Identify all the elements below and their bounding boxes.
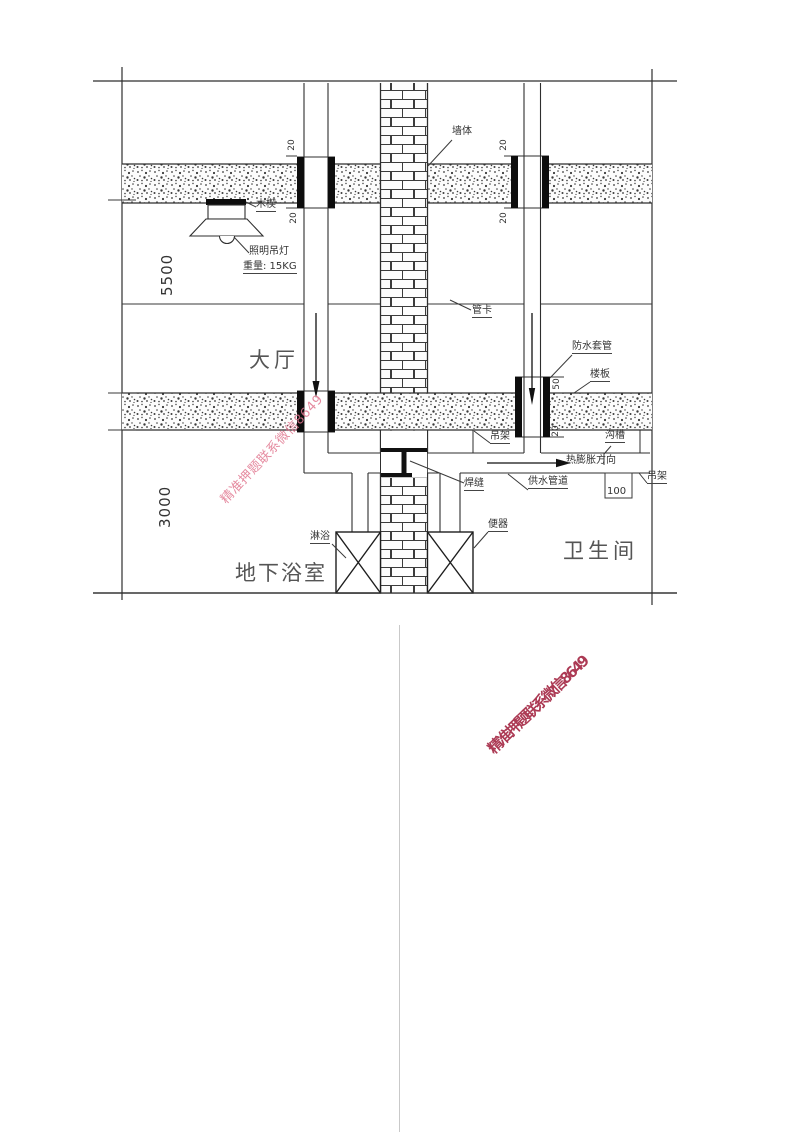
weld-seam-label: 焊缝 — [464, 478, 484, 491]
dim-left-sleeve-above: 20 — [287, 138, 297, 152]
brick-wall — [381, 83, 428, 593]
hanger-left-label: 吊架 — [490, 431, 510, 444]
thermal-direction-label: 热膨胀方向 — [566, 455, 616, 467]
page-fold-line — [399, 625, 400, 1132]
dim-hall-height: 5500 — [158, 254, 176, 296]
waterproof-sleeve-label: 防水套管 — [572, 341, 612, 354]
dim-groove-width: 100 — [607, 486, 626, 497]
pendant-lamp — [190, 199, 263, 244]
diagram-linework — [0, 0, 800, 640]
dim-wp-sleeve-below: 20 — [551, 424, 561, 438]
toilet-label: 便器 — [488, 519, 508, 532]
groove-label: 沟槽 — [605, 430, 625, 443]
page: 墙体 木楔 照明吊灯 重量: 15KG 管卡 防水套管 楼板 吊架 沟槽 热膨胀… — [0, 0, 800, 1132]
dim-basement-height: 3000 — [156, 486, 174, 528]
dim-right-sleeve-below: 20 — [499, 211, 509, 225]
wall-label: 墙体 — [452, 126, 472, 138]
hanger-right-label: 吊架 — [647, 471, 667, 484]
dim-right-sleeve-above: 20 — [499, 138, 509, 152]
pipe-clamp-label: 管卡 — [472, 305, 492, 318]
toilet-box — [428, 532, 474, 593]
weld-beam-section — [381, 431, 427, 478]
dim-wp-sleeve-above: 50 — [552, 377, 562, 391]
lamp-weight-label: 重量: 15KG — [243, 261, 297, 274]
lower-floor-slab — [122, 393, 652, 430]
shower-label: 淋浴 — [310, 531, 330, 544]
lamp-label: 照明吊灯 — [249, 246, 289, 258]
wood-wedge-bar — [206, 199, 246, 205]
room-hall: 大厅 — [249, 344, 299, 374]
floor-slab-label: 楼板 — [590, 369, 610, 382]
wood-wedge-label: 木楔 — [256, 199, 276, 212]
watermark-dark: 精准押题联系微信8649 — [483, 651, 592, 758]
construction-detail-drawing: 墙体 木楔 照明吊灯 重量: 15KG 管卡 防水套管 楼板 吊架 沟槽 热膨胀… — [0, 0, 800, 640]
shower-box — [336, 532, 381, 593]
supply-pipe-label: 供水管道 — [528, 476, 568, 489]
room-bathroom: 卫生间 — [563, 535, 638, 565]
dim-left-sleeve-below: 20 — [289, 211, 299, 225]
room-basement-bath: 地下浴室 — [235, 557, 327, 587]
